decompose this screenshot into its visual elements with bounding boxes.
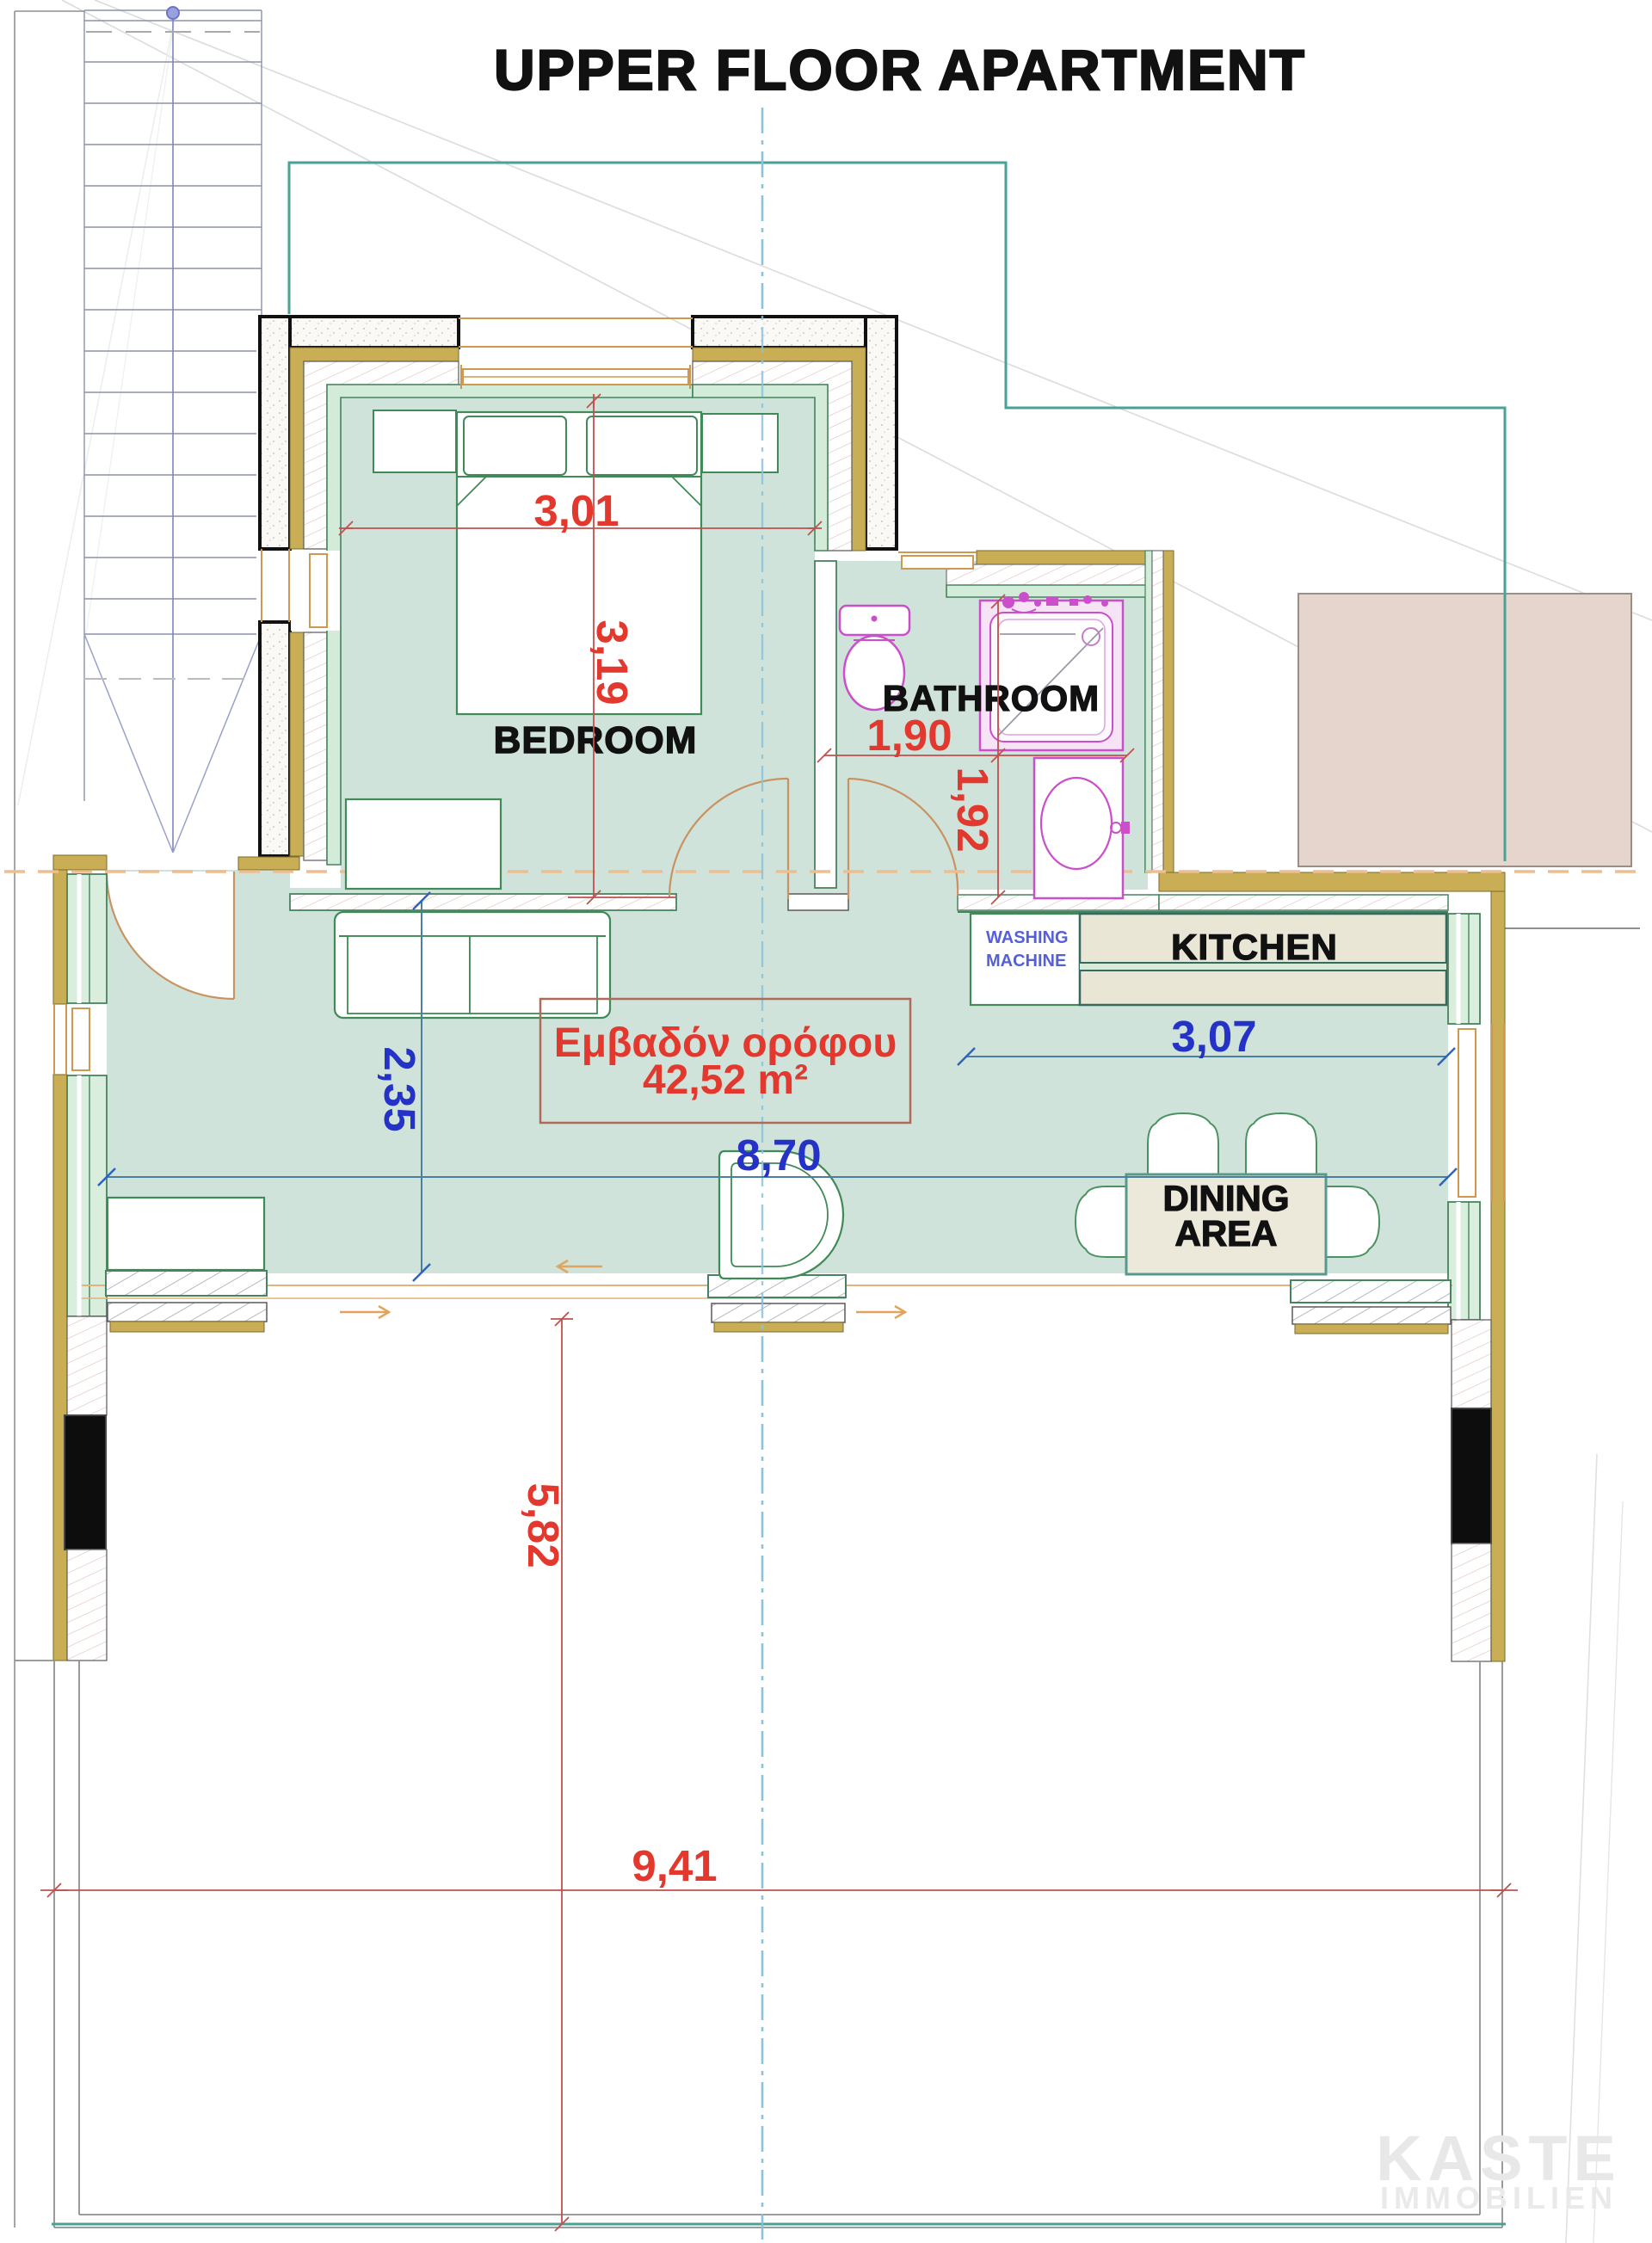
svg-text:1,90: 1,90	[866, 711, 952, 760]
svg-text:2,35: 2,35	[375, 1046, 424, 1131]
svg-text:3,07: 3,07	[1171, 1012, 1256, 1061]
svg-text:BEDROOM: BEDROOM	[494, 719, 698, 761]
svg-text:WASHING: WASHING	[986, 928, 1069, 947]
svg-text:3,19: 3,19	[588, 619, 637, 705]
svg-text:1,92: 1,92	[948, 767, 997, 852]
svg-text:5,82: 5,82	[519, 1482, 568, 1568]
svg-text:UPPER FLOOR APARTMENT: UPPER FLOOR APARTMENT	[494, 38, 1306, 102]
svg-text:3,01: 3,01	[533, 486, 619, 535]
svg-text:KITCHEN: KITCHEN	[1171, 927, 1338, 967]
svg-text:AREA: AREA	[1174, 1213, 1277, 1254]
svg-text:9,41: 9,41	[632, 1841, 717, 1890]
svg-text:DINING: DINING	[1163, 1178, 1290, 1218]
svg-text:MACHINE: MACHINE	[986, 952, 1066, 971]
svg-text:42,52 m²: 42,52 m²	[643, 1057, 808, 1103]
svg-text:IMMOBILIEN: IMMOBILIEN	[1380, 2180, 1618, 2215]
svg-text:8,70: 8,70	[736, 1131, 821, 1180]
